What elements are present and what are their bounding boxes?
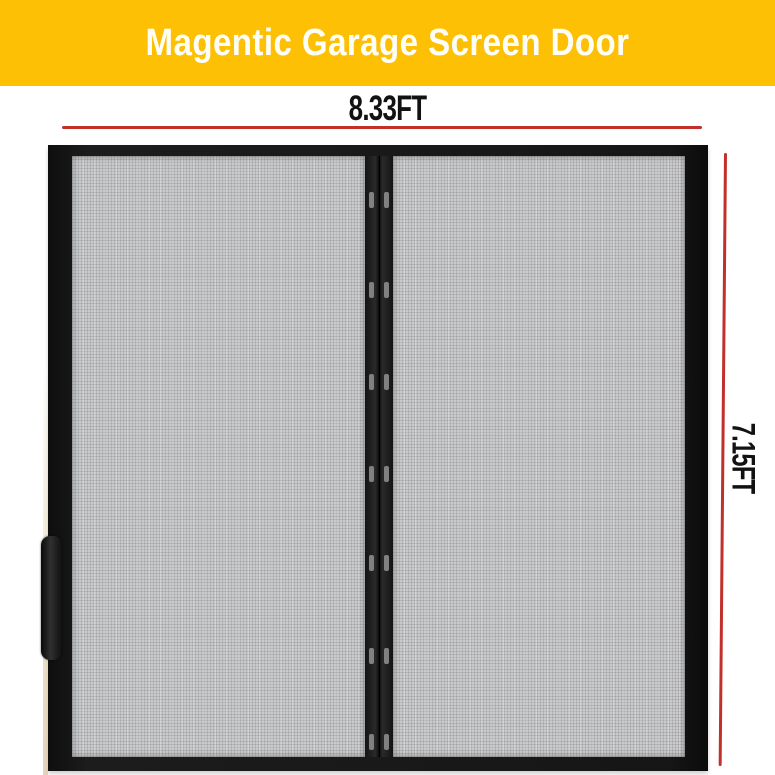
magnet-icon bbox=[384, 282, 389, 298]
magnet-icon bbox=[384, 374, 389, 390]
magnetic-center-strip bbox=[365, 156, 393, 757]
magnet-icon bbox=[369, 374, 374, 390]
magnet-pair bbox=[365, 192, 393, 208]
magnet-pair bbox=[365, 734, 393, 750]
mesh-panel-right bbox=[393, 156, 686, 757]
magnet-pair bbox=[365, 374, 393, 390]
center-gap-line bbox=[379, 156, 380, 757]
magnet-icon bbox=[369, 648, 374, 664]
magnet-icon bbox=[369, 734, 374, 750]
magnet-icon bbox=[369, 466, 374, 482]
magnet-icon bbox=[369, 192, 374, 208]
magnet-pair bbox=[365, 555, 393, 571]
rolled-strap bbox=[41, 536, 62, 660]
door-frame bbox=[48, 145, 708, 771]
width-dimension-label: 8.33FT bbox=[101, 89, 675, 129]
magnet-icon bbox=[384, 555, 389, 571]
magnet-icon bbox=[369, 555, 374, 571]
mesh-panel-left bbox=[72, 156, 365, 757]
product-title: Magentic Garage Screen Door bbox=[50, 0, 724, 86]
magnet-icon bbox=[384, 466, 389, 482]
height-dimension-label: 7.15FT bbox=[725, 423, 762, 494]
magnet-pair bbox=[365, 466, 393, 482]
magnet-icon bbox=[369, 282, 374, 298]
garage-screen-door bbox=[48, 145, 708, 771]
magnet-icon bbox=[384, 192, 389, 208]
title-banner: Magentic Garage Screen Door bbox=[0, 0, 775, 86]
magnet-pair bbox=[365, 282, 393, 298]
magnet-pair bbox=[365, 648, 393, 664]
magnet-icon bbox=[384, 734, 389, 750]
width-dimension-line bbox=[62, 126, 702, 129]
magnet-icon bbox=[384, 648, 389, 664]
product-image: Magentic Garage Screen Door 8.33FT bbox=[0, 0, 775, 775]
